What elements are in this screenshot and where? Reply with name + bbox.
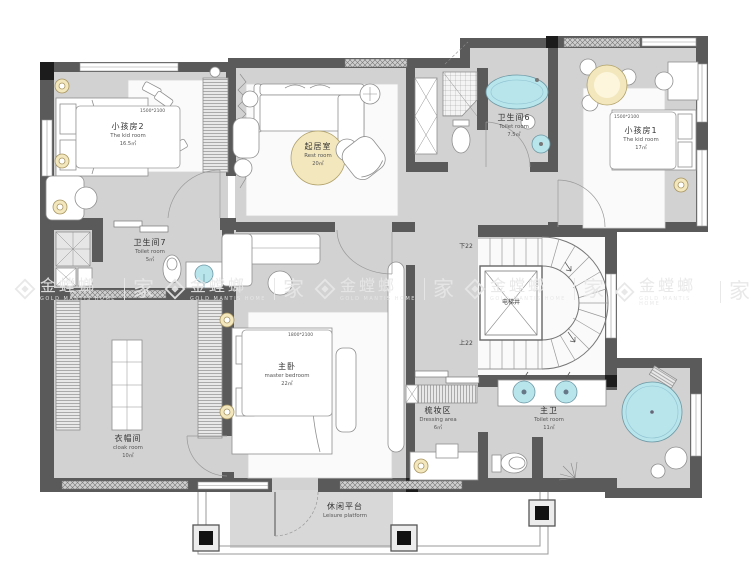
bed-size-kid-room-1: 1500*2100 — [614, 114, 639, 119]
rest-room-furniture — [233, 74, 398, 216]
floor-plan-canvas: 金螳螂GOLD MANTIS HOME 家 金螳螂GOLD MANTIS HOM… — [0, 0, 750, 586]
floor-plan-drawing — [0, 0, 750, 586]
bed-size-kid-room-2: 1500*2100 — [140, 108, 165, 113]
bed-size-master: 1800*2100 — [288, 332, 313, 337]
